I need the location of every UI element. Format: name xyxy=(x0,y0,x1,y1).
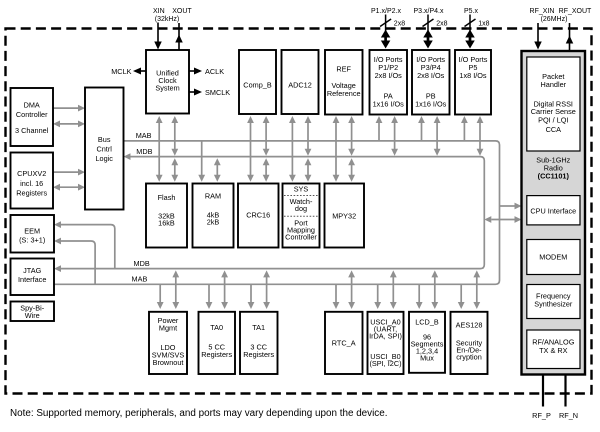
svg-text:1x8 I/Os: 1x8 I/Os xyxy=(459,71,487,80)
svg-text:Controller: Controller xyxy=(16,110,48,119)
svg-text:JTAG: JTAG xyxy=(23,266,41,275)
svg-text:CRC16: CRC16 xyxy=(246,211,270,220)
svg-text:1x16 I/Os: 1x16 I/Os xyxy=(415,100,447,109)
svg-text:2x8 I/Os: 2x8 I/Os xyxy=(375,71,403,80)
svg-text:RF_XIN: RF_XIN xyxy=(530,8,555,15)
svg-text:Comp_B: Comp_B xyxy=(243,81,272,90)
svg-text:Cntrl: Cntrl xyxy=(96,145,112,154)
svg-text:SMCLK: SMCLK xyxy=(205,88,230,97)
svg-text:Logic: Logic xyxy=(95,154,113,163)
svg-text:Note: Supported memory, periph: Note: Supported memory, peripherals, and… xyxy=(10,408,387,419)
svg-text:XOUT: XOUT xyxy=(172,8,192,15)
svg-text:CPU Interface: CPU Interface xyxy=(530,207,576,216)
svg-text:CPUXV2: CPUXV2 xyxy=(17,169,46,178)
svg-text:MDB: MDB xyxy=(134,259,150,268)
svg-text:PQI / LQI: PQI / LQI xyxy=(538,116,568,125)
svg-text:RF_N: RF_N xyxy=(559,411,578,420)
svg-text:Mgmt: Mgmt xyxy=(159,324,177,333)
svg-text:ADC12: ADC12 xyxy=(288,81,312,90)
svg-text:Wire: Wire xyxy=(25,311,40,320)
svg-text:2x8 I/Os: 2x8 I/Os xyxy=(417,71,445,80)
svg-text:XIN: XIN xyxy=(153,8,165,15)
svg-text:Controller: Controller xyxy=(285,233,317,242)
svg-text:RAM: RAM xyxy=(205,192,221,201)
svg-text:REF: REF xyxy=(336,65,351,74)
svg-text:P5.x: P5.x xyxy=(464,8,479,15)
svg-text:Registers: Registers xyxy=(201,350,232,359)
svg-text:MDB: MDB xyxy=(136,147,152,156)
svg-text:LCD_B: LCD_B xyxy=(415,318,439,327)
svg-text:3 Channel: 3 Channel xyxy=(15,126,49,135)
svg-text:(32kHz): (32kHz) xyxy=(155,16,180,23)
svg-text:cryption: cryption xyxy=(456,353,482,362)
svg-text:Registers: Registers xyxy=(16,188,47,197)
svg-text:MAB: MAB xyxy=(132,275,148,284)
svg-text:MAB: MAB xyxy=(136,131,152,140)
svg-text:SYS: SYS xyxy=(294,185,309,194)
svg-text:Brownout: Brownout xyxy=(153,358,184,367)
svg-text:P3.x/P4.x: P3.x/P4.x xyxy=(414,8,444,15)
svg-text:MCLK: MCLK xyxy=(111,67,131,76)
svg-text:incl. 16: incl. 16 xyxy=(20,179,43,188)
svg-text:(S: 3+1): (S: 3+1) xyxy=(19,236,45,245)
svg-text:Handler: Handler xyxy=(541,80,567,89)
svg-text:DMA: DMA xyxy=(24,101,40,110)
svg-text:2kB: 2kB xyxy=(207,218,220,227)
svg-text:16kB: 16kB xyxy=(158,219,175,228)
svg-text:(CC1101): (CC1101) xyxy=(538,172,570,181)
svg-text:TX & RX: TX & RX xyxy=(539,346,568,355)
svg-text:RTC_A: RTC_A xyxy=(332,339,356,348)
svg-text:MPY32: MPY32 xyxy=(332,212,356,221)
svg-text:RF_XOUT: RF_XOUT xyxy=(559,8,592,15)
svg-text:1x16 I/Os: 1x16 I/Os xyxy=(373,100,405,109)
svg-text:Interface: Interface xyxy=(18,275,46,284)
svg-text:Synthesizer: Synthesizer xyxy=(534,300,573,309)
svg-text:ACLK: ACLK xyxy=(205,67,224,76)
svg-text:(SPI, I2C): (SPI, I2C) xyxy=(369,359,401,368)
svg-text:MODEM: MODEM xyxy=(539,253,567,262)
svg-text:Mux: Mux xyxy=(420,354,434,363)
svg-text:System: System xyxy=(155,84,179,93)
svg-text:P1.x/P2.x: P1.x/P2.x xyxy=(371,8,401,15)
svg-text:2x8: 2x8 xyxy=(394,21,405,28)
svg-text:TA1: TA1 xyxy=(252,323,265,332)
svg-text:Reference: Reference xyxy=(327,89,361,98)
svg-text:RF_P: RF_P xyxy=(532,411,551,420)
svg-text:(26MHz): (26MHz) xyxy=(541,16,568,23)
svg-text:Flash: Flash xyxy=(158,193,176,202)
svg-text:IrDA, SPI): IrDA, SPI) xyxy=(369,332,402,341)
svg-text:Registers: Registers xyxy=(243,350,274,359)
svg-text:dog: dog xyxy=(295,204,307,213)
svg-text:2x8: 2x8 xyxy=(436,21,447,28)
svg-text:TA0: TA0 xyxy=(210,323,223,332)
svg-text:AES128: AES128 xyxy=(456,321,483,330)
svg-text:CCA: CCA xyxy=(546,125,562,134)
svg-text:Bus: Bus xyxy=(98,135,111,144)
svg-text:EEM: EEM xyxy=(24,227,40,236)
svg-text:1x8: 1x8 xyxy=(478,21,489,28)
